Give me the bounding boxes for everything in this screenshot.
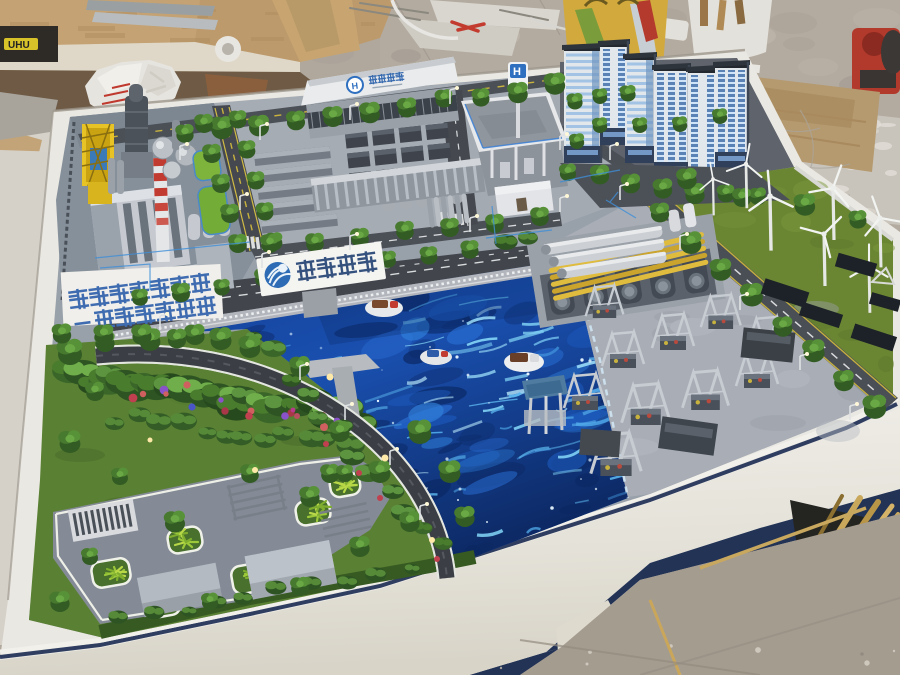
svg-text:H: H (351, 81, 359, 92)
svg-text:H: H (513, 66, 521, 78)
svg-text:UHU: UHU (8, 40, 30, 51)
